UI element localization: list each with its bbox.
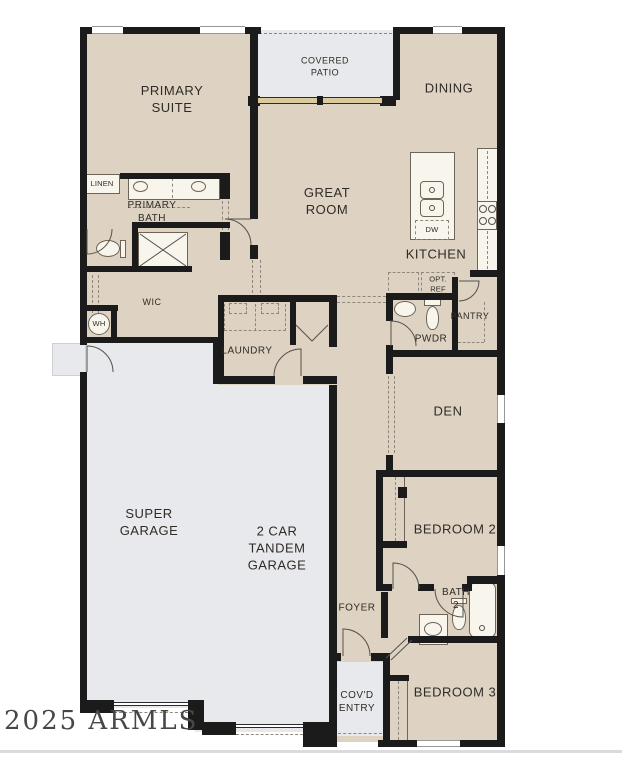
door-arc-garage-side <box>87 346 113 372</box>
room-label-linen: LINEN <box>90 179 113 189</box>
room-label-pantry: PANTRY <box>451 311 490 323</box>
door-arc-front-entry <box>343 629 370 656</box>
closet-bifold-doors <box>296 325 328 341</box>
room-label-kitchen: KITCHEN <box>406 247 467 264</box>
room-label-wic: WIC <box>143 297 162 309</box>
room-label-primary-bath: PRIMARY BATH <box>128 199 177 225</box>
room-label-covered-entry: COV'D ENTRY <box>339 689 375 715</box>
room-label-den: DEN <box>434 404 463 421</box>
cooktop-burner <box>480 206 487 213</box>
shower-glass-x <box>140 234 186 266</box>
label-water-heater: WH <box>93 319 106 329</box>
island-sink-drain <box>430 206 435 211</box>
island-sink-drain <box>430 188 435 193</box>
door-arc-laundry <box>274 349 301 376</box>
door-leaf-bedroom3 <box>386 638 412 660</box>
door-arc-pantry <box>459 281 479 301</box>
room-label-covered-patio: COVERED PATIO <box>301 55 349 78</box>
room-label-bath-2: BATH 2 <box>442 586 470 612</box>
cooktop-burner <box>489 206 496 213</box>
door-arc-bedroom2 <box>393 563 419 589</box>
door-and-detail-overlay <box>0 0 622 761</box>
room-label-super-garage: SUPER GARAGE <box>120 506 179 540</box>
room-label-dining: DINING <box>425 81 474 98</box>
floor-plan: PRIMARY SUITE COVERED PATIO DINING PRIMA… <box>0 0 622 761</box>
door-arc-powder <box>391 321 416 346</box>
room-label-foyer: FOYER <box>339 602 376 615</box>
room-label-great-room: GREAT ROOM <box>304 185 350 219</box>
door-arc-suite-hall <box>225 219 251 245</box>
door-arc-toilet-room <box>87 229 112 254</box>
room-label-bedroom-3: BEDROOM 3 <box>414 685 497 702</box>
room-label-laundry: LAUNDRY <box>221 345 272 358</box>
tub-drain <box>480 626 485 631</box>
cooktop-burner <box>480 218 487 225</box>
room-label-powder: PWDR <box>415 333 448 346</box>
armls-watermark: 2025 ARMLS <box>4 706 198 736</box>
room-label-bedroom-2: BEDROOM 2 <box>414 522 497 539</box>
room-label-tandem-garage: 2 CAR TANDEM GARAGE <box>248 524 307 575</box>
label-dishwasher: DW <box>426 225 439 235</box>
label-opt-ref: OPT. REF <box>429 274 446 294</box>
cooktop-burner <box>489 218 496 225</box>
room-label-primary-suite: PRIMARY SUITE <box>141 83 204 117</box>
